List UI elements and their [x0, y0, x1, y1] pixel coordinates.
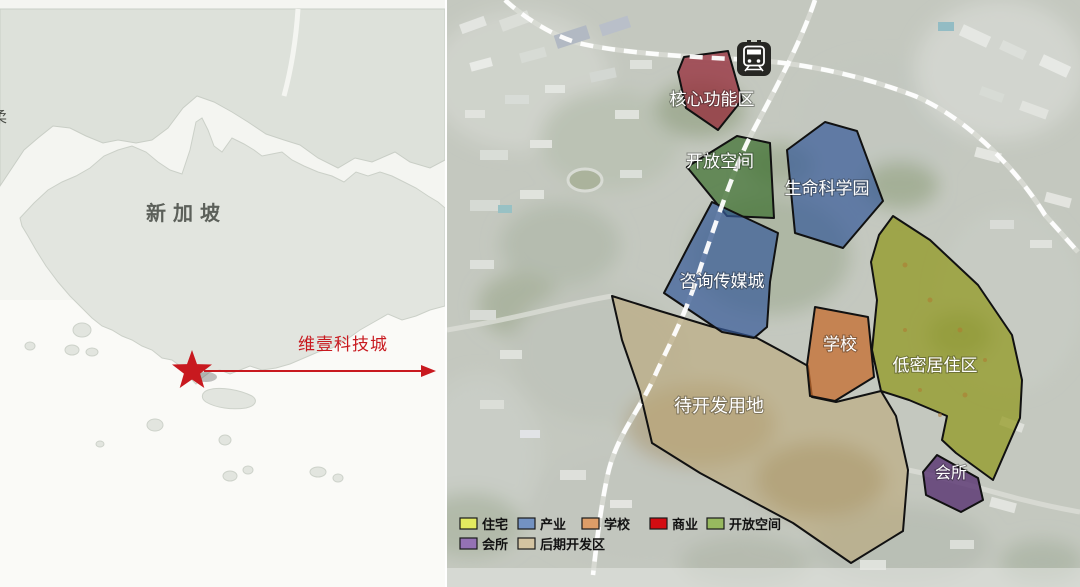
zone-label-future-development: 待开发用地	[674, 396, 764, 416]
legend-label-commercial: 商业	[672, 517, 698, 532]
zone-label-clubhouse: 会所	[935, 464, 967, 482]
legend-label-open-space: 开放空间	[729, 517, 781, 532]
locator-map: 柔 新加坡 维壹科技城	[0, 0, 445, 587]
legend-swatch-clubhouse	[460, 538, 477, 549]
legend-label-clubhouse: 会所	[482, 537, 508, 552]
legend-swatch-future-development	[518, 538, 535, 549]
zone-label-school: 学校	[823, 335, 857, 354]
clipped-edge-label: 柔	[0, 109, 7, 126]
legend-label-residential: 住宅	[482, 517, 508, 532]
legend-swatch-open-space	[707, 518, 724, 529]
zone-label-life-science-park: 生命科学园	[785, 179, 870, 198]
legend-swatch-commercial	[650, 518, 667, 529]
callout-label: 维壹科技城	[298, 335, 388, 354]
zone-label-media-city: 咨询传媒城	[680, 272, 765, 291]
master-plan-map: 核心功能区 开放空间 生命科学园 咨询传媒城 学校 低密居住区 待开发用地 会所…	[447, 0, 1080, 587]
train-station-icon	[737, 40, 771, 76]
page: 柔 新加坡 维壹科技城	[0, 0, 1080, 587]
zone-label-low-density-residential: 低密居住区	[893, 356, 978, 375]
legend-swatch-residential	[460, 518, 477, 529]
legend-label-school: 学校	[604, 517, 631, 532]
legend-swatch-industry	[518, 518, 535, 529]
legend-label-future-development: 后期开发区	[540, 537, 605, 552]
legend-swatch-school	[582, 518, 599, 529]
locator-map-panel: 柔 新加坡 维壹科技城	[0, 0, 445, 587]
master-plan-panel: 核心功能区 开放空间 生命科学园 咨询传媒城 学校 低密居住区 待开发用地 会所…	[447, 0, 1080, 587]
zone-label-open-space: 开放空间	[686, 152, 754, 171]
country-label: 新加坡	[146, 201, 227, 225]
zone-label-core-function: 核心功能区	[670, 90, 755, 109]
legend-label-industry: 产业	[540, 517, 566, 532]
